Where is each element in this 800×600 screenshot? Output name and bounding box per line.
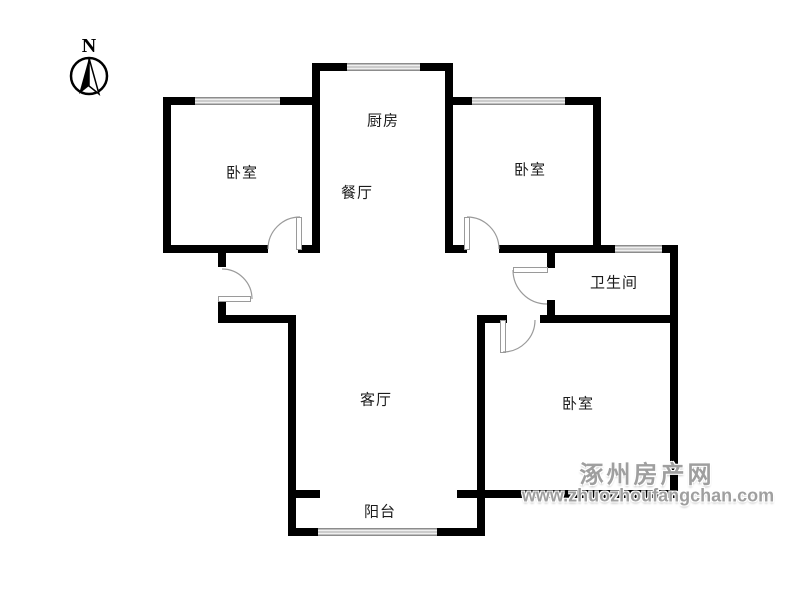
room-label-balcony: 阳台 [364,501,396,522]
bedroom-top-right-door-swing-arc [467,217,499,249]
room-label-bathroom: 卫生间 [590,272,638,293]
watermark-site-name: 涿州房产网 [580,455,715,490]
floorplan-canvas: N 厨房餐厅卧室卧室卫生间卧室客厅阳台 涿州房产网 www.zhuozhoufa… [0,0,800,600]
north-arrow-right-half [89,58,99,94]
entry-door-swing-arc [222,269,252,299]
bedroom-top-left-door-swing-arc [268,217,300,249]
door-arcs-layer [0,0,800,600]
room-label-kitchen: 厨房 [367,110,399,131]
north-arrow-left-half [79,58,89,94]
room-label-bedroom-bottom-right: 卧室 [562,393,594,414]
room-label-living-room: 客厅 [360,389,392,410]
bedroom-bottom-right-door-swing-arc [503,320,535,352]
north-label: N [82,35,97,57]
room-label-bedroom-top-right: 卧室 [514,159,546,180]
watermark-site-url: www.zhuozhoufangchan.com [522,486,774,507]
bathroom-door-swing-arc [513,270,547,304]
room-label-bedroom-top-left: 卧室 [226,162,258,183]
room-label-dining-room: 餐厅 [341,182,373,203]
north-compass: N [62,32,118,102]
